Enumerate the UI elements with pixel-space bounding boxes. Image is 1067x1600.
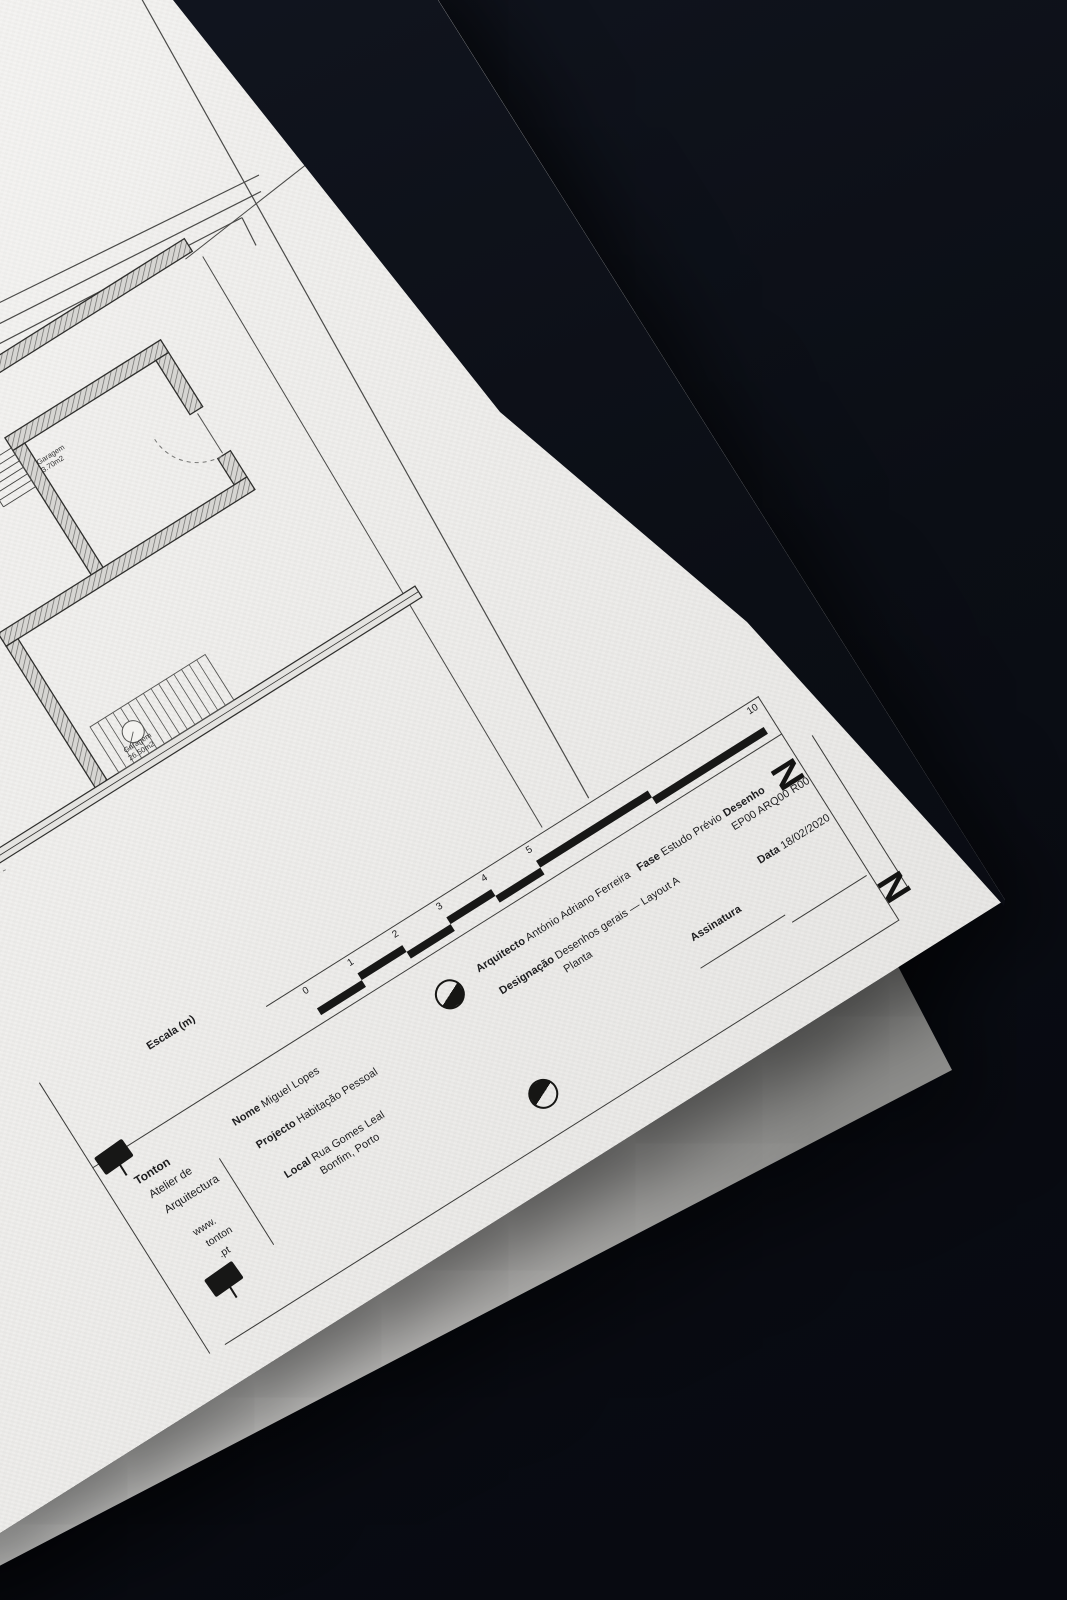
door-swing <box>155 413 224 482</box>
site-boundary-lines <box>0 0 634 827</box>
boundary-wall <box>0 586 422 902</box>
photo-backdrop: Garagem 3.70m2 Garagem 26.50m2 Escala (m… <box>0 0 1067 1600</box>
logo-stem <box>119 1164 128 1176</box>
floor-plan-drawing <box>0 0 1005 1600</box>
plan-walls <box>0 239 409 792</box>
drawing-sheet: Garagem 3.70m2 Garagem 26.50m2 Escala (m… <box>0 0 1005 1600</box>
logo-stem <box>229 1286 238 1298</box>
